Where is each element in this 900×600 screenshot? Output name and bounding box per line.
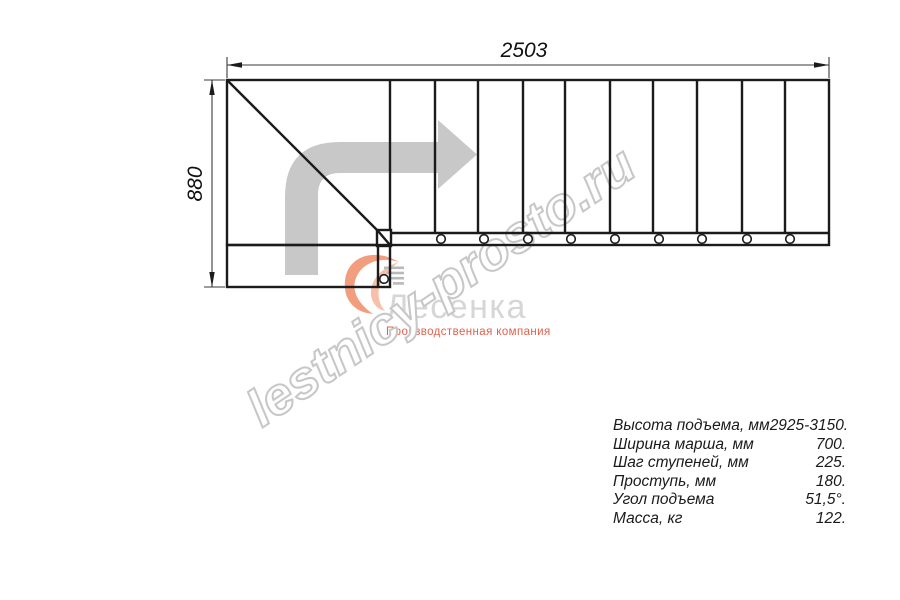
spec-value: 180.	[816, 473, 846, 492]
spec-value: 2925-3150.	[770, 417, 848, 436]
width-dimension-label: 2503	[500, 39, 548, 62]
spec-label: Высота подъема, мм	[613, 417, 770, 436]
spec-label: Угол подъема	[613, 491, 714, 510]
spec-value: 225.	[816, 454, 846, 473]
spec-table: Высота подъема, мм 2925-3150. Ширина мар…	[613, 417, 846, 529]
spec-label: Масса, кг	[613, 510, 682, 529]
spec-row: Шаг ступеней, мм 225.	[613, 454, 846, 473]
height-dimension-label: 880	[184, 166, 207, 201]
newel-post	[377, 230, 391, 246]
spec-row: Ширина марша, мм 700.	[613, 436, 846, 455]
spec-value: 700.	[816, 436, 846, 455]
spec-row: Высота подъема, мм 2925-3150.	[613, 417, 846, 436]
stair-plan-page: Лесенка Производственная компания lestni…	[0, 0, 900, 600]
spec-value: 51,5°.	[805, 491, 846, 510]
spec-label: Шаг ступеней, мм	[613, 454, 749, 473]
spec-row: Проступь, мм 180.	[613, 473, 846, 492]
spec-row: Угол подъема 51,5°.	[613, 491, 846, 510]
height-dimension	[204, 80, 225, 287]
spec-label: Проступь, мм	[613, 473, 716, 492]
spec-row: Масса, кг 122.	[613, 510, 846, 529]
spec-label: Ширина марша, мм	[613, 436, 754, 455]
spec-value: 122.	[816, 510, 846, 529]
